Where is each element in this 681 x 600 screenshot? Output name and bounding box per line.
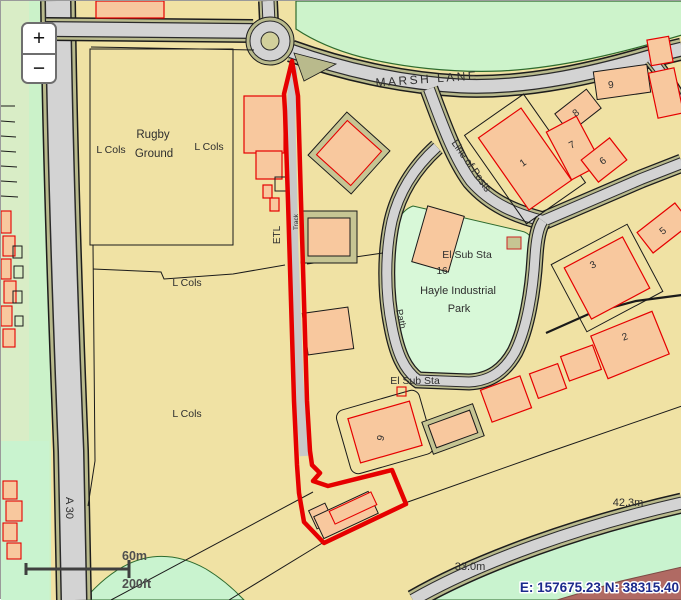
scale-metric-label: 60m bbox=[122, 549, 147, 563]
map-viewer: { "controls": { "zoom_in": "+", "zoom_ou… bbox=[0, 0, 681, 599]
l-cols-label-1: L Cols bbox=[96, 144, 125, 156]
building bbox=[96, 1, 164, 18]
l-cols-label-4: L Cols bbox=[172, 408, 201, 420]
scale-imperial-label: 200ft bbox=[122, 577, 152, 591]
rugby-ground-label-1: Rugby bbox=[136, 129, 169, 141]
track-label: Track bbox=[293, 213, 300, 230]
plot-16-label: 16 bbox=[436, 266, 448, 277]
coordinate-readout: E: 157675.23 N: 38315.40 bbox=[520, 580, 679, 595]
l-cols-label-3: L Cols bbox=[172, 277, 201, 289]
l-cols-label-2: L Cols bbox=[194, 141, 223, 153]
road-label-a30: A 30 bbox=[63, 497, 75, 519]
map-canvas[interactable]: MARSH LANE Rugby Ground L Cols L Cols L … bbox=[1, 1, 681, 600]
hayle-park-label-2: Park bbox=[448, 303, 471, 315]
el-sub-sta-label-2: El Sub Sta bbox=[390, 375, 440, 387]
zoom-in-button[interactable]: + bbox=[23, 24, 55, 53]
rugby-ground-label-2: Ground bbox=[135, 148, 173, 160]
etl-label: ETL bbox=[272, 225, 283, 244]
height-label-2: 33.0m bbox=[455, 561, 486, 573]
height-label-1: 42.3m bbox=[613, 497, 644, 509]
hayle-park-label-1: Hayle Industrial bbox=[420, 285, 496, 297]
zoom-control: + − bbox=[21, 22, 57, 84]
zoom-out-button[interactable]: − bbox=[23, 53, 55, 82]
el-sub-sta-label-1: El Sub Sta bbox=[442, 249, 492, 261]
